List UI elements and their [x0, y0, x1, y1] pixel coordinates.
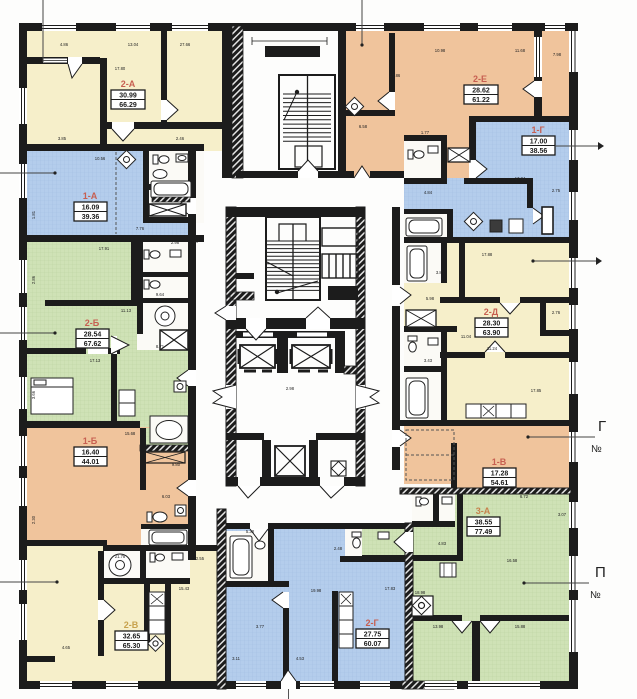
svg-text:№: №	[590, 590, 601, 601]
svg-text:61.22: 61.22	[472, 97, 490, 104]
svg-text:2.76: 2.76	[552, 310, 561, 315]
svg-text:3.43: 3.43	[424, 358, 433, 363]
svg-text:2.48: 2.48	[334, 546, 343, 551]
svg-text:67.62: 67.62	[84, 341, 102, 348]
svg-text:2.30: 2.30	[31, 515, 36, 524]
svg-text:3.11: 3.11	[232, 656, 241, 661]
svg-text:15.88: 15.88	[515, 624, 526, 629]
svg-text:3.66: 3.66	[31, 390, 36, 399]
svg-text:17.84: 17.84	[515, 176, 526, 181]
svg-text:16.09: 16.09	[82, 205, 100, 212]
svg-text:Г: Г	[598, 418, 606, 435]
svg-text:8.71: 8.71	[156, 344, 165, 349]
svg-text:2.46: 2.46	[176, 136, 185, 141]
svg-text:6.72: 6.72	[520, 494, 529, 499]
svg-text:11.04: 11.04	[461, 334, 472, 339]
svg-text:32.65: 32.65	[123, 634, 141, 641]
svg-text:4.86: 4.86	[60, 42, 69, 47]
svg-text:17.13: 17.13	[90, 358, 101, 363]
svg-text:3.83: 3.83	[436, 270, 445, 275]
svg-text:21.78: 21.78	[115, 554, 126, 559]
svg-text:1-Б: 1-Б	[83, 436, 98, 446]
svg-text:9.80: 9.80	[172, 462, 181, 467]
svg-text:6.03: 6.03	[162, 494, 171, 499]
svg-text:2-Д: 2-Д	[484, 307, 499, 317]
svg-text:4.65: 4.65	[62, 645, 71, 650]
svg-text:2.75: 2.75	[552, 188, 561, 193]
svg-text:16.58: 16.58	[507, 558, 518, 563]
svg-text:54.61: 54.61	[491, 480, 509, 487]
svg-text:4.84: 4.84	[424, 190, 433, 195]
svg-text:63.90: 63.90	[483, 330, 501, 337]
svg-text:11.13: 11.13	[121, 308, 132, 313]
svg-text:38.56: 38.56	[530, 148, 548, 155]
svg-text:7.76: 7.76	[136, 226, 145, 231]
svg-text:11.68: 11.68	[515, 48, 526, 53]
svg-text:27.75: 27.75	[364, 632, 382, 639]
svg-text:10.98: 10.98	[435, 48, 446, 53]
svg-text:17.86: 17.86	[390, 73, 401, 78]
svg-text:38.55: 38.55	[475, 520, 493, 527]
svg-text:17.00: 17.00	[530, 139, 548, 146]
svg-text:13.98: 13.98	[433, 624, 444, 629]
svg-text:28.62: 28.62	[472, 88, 490, 95]
svg-text:1.77: 1.77	[421, 130, 430, 135]
svg-text:17.83: 17.83	[385, 586, 396, 591]
svg-text:2-А: 2-А	[121, 79, 136, 89]
svg-text:17.91: 17.91	[99, 246, 110, 251]
svg-text:16.40: 16.40	[82, 450, 100, 457]
svg-text:5.98: 5.98	[426, 296, 435, 301]
svg-text:П: П	[595, 564, 606, 581]
svg-text:1-В: 1-В	[492, 457, 507, 467]
svg-text:15.43: 15.43	[179, 586, 190, 591]
svg-text:17.85: 17.85	[531, 388, 542, 393]
svg-text:3.77: 3.77	[256, 624, 265, 629]
svg-text:4.53: 4.53	[296, 656, 305, 661]
svg-text:3.07: 3.07	[558, 512, 567, 517]
svg-text:44.01: 44.01	[82, 459, 100, 466]
svg-text:2-В: 2-В	[124, 620, 139, 630]
svg-text:17.80: 17.80	[115, 66, 126, 71]
svg-text:39.36: 39.36	[82, 214, 100, 221]
svg-text:65.30: 65.30	[123, 643, 141, 650]
svg-text:28.54: 28.54	[84, 332, 102, 339]
svg-text:19.98: 19.98	[311, 588, 322, 593]
svg-text:1.81: 1.81	[31, 210, 36, 219]
svg-text:6.58: 6.58	[359, 124, 368, 129]
svg-text:66.29: 66.29	[119, 102, 137, 109]
svg-text:2.98: 2.98	[286, 386, 295, 391]
svg-text:15.68: 15.68	[125, 431, 136, 436]
svg-text:2-Е: 2-Е	[473, 74, 487, 84]
svg-text:3-А: 3-А	[476, 506, 491, 516]
svg-text:10.56: 10.56	[95, 156, 106, 161]
svg-text:60.07: 60.07	[364, 641, 382, 648]
svg-text:3.85: 3.85	[58, 136, 67, 141]
svg-text:7.98: 7.98	[553, 52, 562, 57]
svg-text:18.98: 18.98	[415, 590, 426, 595]
svg-text:2.98: 2.98	[171, 240, 180, 245]
svg-text:2.86: 2.86	[31, 275, 36, 284]
svg-text:№: №	[591, 444, 602, 455]
svg-text:77.49: 77.49	[475, 529, 493, 536]
svg-text:30.99: 30.99	[119, 93, 137, 100]
svg-text:13.04: 13.04	[128, 42, 139, 47]
svg-text:4.87: 4.87	[191, 239, 200, 244]
svg-text:17.88: 17.88	[482, 252, 493, 257]
svg-text:9.64: 9.64	[156, 292, 165, 297]
svg-text:4.83: 4.83	[438, 541, 447, 546]
svg-text:27.66: 27.66	[180, 42, 191, 47]
svg-text:2-Б: 2-Б	[85, 318, 100, 328]
svg-text:11.24: 11.24	[487, 346, 498, 351]
svg-text:1-Г: 1-Г	[531, 125, 544, 135]
svg-text:17.28: 17.28	[491, 471, 509, 478]
svg-text:1-А: 1-А	[83, 191, 98, 201]
svg-text:2.55: 2.55	[196, 556, 205, 561]
svg-text:5.38: 5.38	[246, 529, 255, 534]
svg-text:28.30: 28.30	[483, 321, 501, 328]
svg-text:2-Г: 2-Г	[365, 618, 378, 628]
